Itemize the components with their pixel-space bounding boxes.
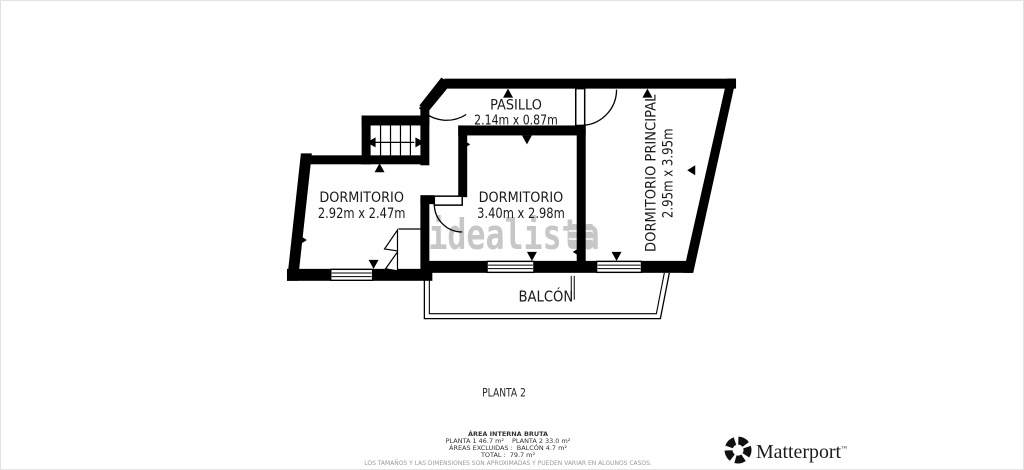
wall-entry-chamfer [419,78,451,112]
room-dims-dormitorio-left: 2.92m x 2.47m [318,206,406,222]
principal-door-arc [581,90,617,126]
wall-landing [420,105,429,166]
area-summary-total: TOTAL :79.7 m² [480,451,536,459]
disclaimer: LOS TAMAÑOS Y LAS DIMENSIONES SON APROXI… [364,460,652,467]
matterport-wordmark: Matterport™ [756,441,847,463]
stairs [381,125,411,155]
room-label-pasillo: PASILLO [490,98,542,114]
matterport-pinwheel-icon [726,438,750,462]
room-label-balcon: BALCÓN [518,288,573,306]
room-dims-pasillo: 2.14m x 0.87m [474,113,558,128]
wall-dormcentro-lowerleft [420,199,429,273]
room-label-dormitorio-centro: DORMITORIO [479,190,564,206]
wall-dormcentro-left [458,125,467,197]
area-summary: ÁREA INTERNA BRUTA PLANTA 1 46.7 m²PLANT… [364,429,652,467]
trademark-symbol: ™ [841,446,847,452]
wall-right-slanted [683,79,736,273]
wall-stair-top [362,116,430,126]
floorplan-image: idealista [0,0,1024,470]
window-dormleft [331,269,373,280]
window-dormcentro [487,261,534,272]
closet-bifold-door [385,229,421,271]
room-dims-dormitorio-principal: 2.95m x 3.95m [660,128,676,218]
wall-bottom-right [424,261,692,273]
wall-top [444,79,736,89]
matterport-logo: Matterport™ [726,438,847,463]
room-label-dormitorio-principal: DORMITORIO PRINCIPAL [643,95,659,252]
wall-principal-separator [577,125,586,267]
floor-label: PLANTA 2 [482,385,526,399]
room-label-dormitorio-left: DORMITORIO [319,190,404,206]
room-dims-dormitorio-centro: 3.40m x 2.98m [477,206,565,222]
wall-left-slanted [287,153,312,280]
dormcentro-door-leaf [434,196,462,205]
stair-direction-arrow [367,137,425,147]
floorplan-svg: idealista [1,1,1023,469]
window-principal [597,261,642,272]
area-summary-excluded: ÁREAS EXCLUIDAS :BALCÓN 4.7 m² [449,443,567,452]
principal-door-leaf [576,89,585,126]
